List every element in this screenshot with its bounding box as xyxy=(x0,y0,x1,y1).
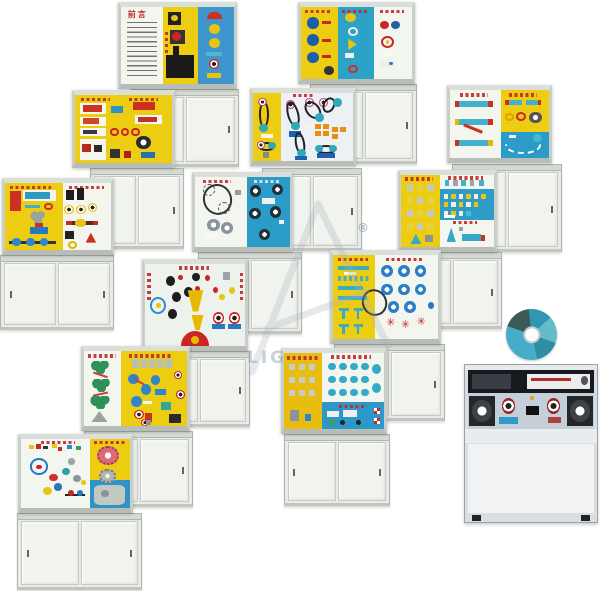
cabinet-door-right xyxy=(365,92,414,159)
cabinet-doors xyxy=(4,263,110,325)
display-item-rect xyxy=(169,414,180,423)
display-item-disc xyxy=(229,287,235,294)
display-item-wheel xyxy=(388,301,400,313)
display-item-rect xyxy=(417,184,424,191)
display-case-shafts-bearings-cabinet: ✳✳✳ xyxy=(330,250,441,344)
display-item-vtext xyxy=(240,271,244,301)
door-handle xyxy=(491,289,493,296)
display-item-disc xyxy=(156,303,161,308)
display-item-rect xyxy=(141,359,147,369)
display-panel: ✳✳✳ xyxy=(333,255,438,339)
display-item-title xyxy=(460,93,488,96)
cabinet-door-right xyxy=(81,521,139,585)
display-case-threaded-fasteners-cabinet xyxy=(398,170,497,252)
display-item-rect xyxy=(344,272,357,275)
door-handle xyxy=(182,467,184,474)
display-item-wheel xyxy=(136,136,151,150)
display-item-rect xyxy=(82,144,92,152)
display-item-ring xyxy=(516,112,526,121)
display-item-title xyxy=(509,93,537,96)
display-item-target xyxy=(134,410,143,419)
display-item-rect xyxy=(305,414,311,422)
display-item-rect xyxy=(332,127,338,132)
display-item-disc xyxy=(328,389,336,397)
display-item-disc xyxy=(73,475,81,482)
display-item-disc xyxy=(307,17,319,29)
display-item-text: 前言 xyxy=(128,9,157,19)
display-item-rect xyxy=(461,180,466,186)
display-item-disc xyxy=(339,363,347,371)
display-item-rect xyxy=(581,515,590,521)
display-item-rect xyxy=(505,100,508,105)
display-item-disc xyxy=(54,483,63,491)
display-item-rect xyxy=(444,202,449,207)
display-item-disc xyxy=(131,396,141,407)
display-item-rect xyxy=(459,227,464,231)
display-item-rect xyxy=(382,279,391,282)
display-item-checker xyxy=(374,418,380,424)
display-item-rect xyxy=(407,223,414,230)
display-item-disc xyxy=(530,396,534,400)
display-item-rect xyxy=(141,152,155,157)
display-item-disc xyxy=(307,34,319,46)
display-item-title xyxy=(331,355,371,359)
display-item-wheel xyxy=(249,208,260,219)
cabinet-door-right xyxy=(186,97,236,162)
display-item-rect xyxy=(317,153,335,158)
display-item-disc xyxy=(141,384,151,395)
display-item-rect xyxy=(468,444,595,513)
display-item-rect xyxy=(472,515,481,521)
display-item-rect xyxy=(212,324,225,329)
display-item-rect xyxy=(206,52,222,56)
display-panel xyxy=(195,177,290,247)
display-item-rect xyxy=(110,149,120,157)
door-handle xyxy=(239,387,241,394)
display-item-cluster xyxy=(91,379,112,392)
cabinet-door-right xyxy=(338,442,386,501)
display-item-title xyxy=(380,10,404,14)
display-item-disc xyxy=(166,276,175,286)
display-item-title xyxy=(129,98,158,101)
display-item-disc xyxy=(168,309,177,319)
display-item-rect xyxy=(132,359,138,369)
door-handle xyxy=(10,291,12,298)
display-item-rect xyxy=(58,447,62,451)
door-handle xyxy=(173,207,175,214)
display-item-disc xyxy=(361,389,369,397)
display-item-vtext xyxy=(165,30,168,53)
display-item-rect xyxy=(343,410,357,417)
display-item-title xyxy=(339,405,364,408)
cabinet-door-right xyxy=(313,176,358,246)
display-item-rect xyxy=(332,134,338,139)
display-case-chain-drive-cabinet xyxy=(192,172,293,252)
cd-hole xyxy=(523,326,540,343)
display-item-target xyxy=(76,205,86,214)
display-item-rect xyxy=(444,194,449,199)
display-item-rect xyxy=(228,324,241,329)
display-item-rect xyxy=(455,140,493,146)
display-item-target xyxy=(257,141,265,148)
display-item-title xyxy=(287,356,318,360)
display-item-rect xyxy=(407,197,414,204)
display-item-disc xyxy=(361,376,369,384)
display-item-rect xyxy=(451,202,456,207)
display-item-wheel xyxy=(570,400,590,422)
display-item-disc xyxy=(62,468,70,475)
display-item-blob xyxy=(94,485,125,504)
display-item-rect xyxy=(309,377,315,383)
display-item-rect xyxy=(453,180,458,186)
display-item-rect xyxy=(342,327,345,334)
display-item-rect xyxy=(479,180,484,186)
display-item-rect xyxy=(427,210,434,217)
display-item-rect xyxy=(289,364,295,370)
display-item-rect xyxy=(77,188,84,200)
display-item-rect xyxy=(399,279,408,282)
display-item-rect xyxy=(427,184,434,191)
cabinet-body xyxy=(17,513,142,590)
display-item-ring xyxy=(348,27,358,36)
display-item-rect xyxy=(299,364,305,370)
cabinet-door-right xyxy=(453,260,498,324)
display-item-wheel xyxy=(404,301,416,313)
display-item-rect xyxy=(235,190,241,196)
display-item-rect xyxy=(342,311,345,319)
display-item-rect xyxy=(548,417,561,423)
display-item-disc xyxy=(172,292,181,302)
display-item-disc xyxy=(350,376,358,384)
display-item-rect xyxy=(538,100,541,105)
cabinet-door-left xyxy=(4,263,56,325)
control-console xyxy=(464,364,598,523)
display-panel xyxy=(21,439,130,508)
display-item-title xyxy=(453,221,477,224)
display-item-rect xyxy=(207,73,221,78)
display-item-disc xyxy=(26,238,34,246)
display-item-rect xyxy=(531,378,571,381)
display-item-target xyxy=(547,398,560,414)
display-case-coupling-cabinet xyxy=(447,85,552,163)
display-item-rect xyxy=(444,215,455,219)
cabinet-door-right xyxy=(58,263,110,325)
display-item-rect xyxy=(76,446,81,450)
display-item-disc xyxy=(328,376,336,384)
display-item-rect xyxy=(488,101,492,107)
cabinet-door-right xyxy=(138,176,180,244)
display-item-rect xyxy=(425,235,432,242)
display-item-rect xyxy=(83,130,98,135)
display-item-rect xyxy=(481,235,485,240)
display-item-disc xyxy=(209,38,220,48)
display-item-rect xyxy=(481,194,486,199)
door-handle xyxy=(130,550,132,557)
display-item-lines xyxy=(127,22,158,76)
display-item-rect xyxy=(338,286,363,290)
display-item-rect xyxy=(10,191,21,211)
display-item-rect xyxy=(309,364,315,370)
display-item-target xyxy=(502,398,515,414)
display-panel: 前言 xyxy=(121,7,234,84)
display-panel xyxy=(450,90,549,158)
display-item-disc xyxy=(43,487,52,495)
display-item-wheel xyxy=(250,185,261,196)
display-item-rect xyxy=(299,390,305,396)
display-item-rect xyxy=(323,131,329,136)
display-item-rect xyxy=(205,234,218,239)
display-item-rect xyxy=(459,202,464,207)
display-item-rect xyxy=(124,151,132,158)
display-case-small-parts-cabinet xyxy=(281,348,387,434)
display-item-disc xyxy=(328,363,336,371)
display-item-rect xyxy=(417,197,424,204)
display-item-rect xyxy=(488,119,492,125)
display-item-rect xyxy=(427,223,434,230)
display-item-disc xyxy=(339,376,347,384)
display-item-disc xyxy=(350,389,358,397)
display-item-disc xyxy=(209,24,220,34)
display-item-rect xyxy=(25,205,40,208)
door-handle xyxy=(293,469,295,476)
display-item-rect xyxy=(29,445,34,449)
display-item-title xyxy=(88,354,116,358)
display-case-foreword-sewing-machine-cabinet: 前言 xyxy=(118,2,237,89)
display-item-rect xyxy=(279,220,285,224)
display-item-ring xyxy=(68,241,78,249)
display-case-gears-cabinet xyxy=(18,434,133,513)
display-item-rect xyxy=(36,444,40,449)
display-item-rect xyxy=(474,202,479,207)
display-item-rect xyxy=(445,180,450,186)
display-item-rect xyxy=(322,21,331,24)
display-item-rect xyxy=(35,223,43,228)
display-item-disc xyxy=(372,364,381,374)
display-item-disc xyxy=(192,273,200,281)
display-item-rect xyxy=(262,198,274,204)
door-handle xyxy=(379,469,381,476)
display-item-target xyxy=(174,371,182,379)
display-item-rect xyxy=(65,231,73,239)
door-handle xyxy=(351,208,353,215)
display-item-rect xyxy=(143,401,152,405)
display-item-disc xyxy=(350,363,358,371)
display-item-title xyxy=(69,186,104,189)
display-item-rect xyxy=(305,125,313,128)
display-item-disc xyxy=(151,375,160,385)
display-item-disc xyxy=(386,40,389,43)
display-item-rect xyxy=(173,46,179,57)
display-item-disc xyxy=(315,145,323,152)
display-item-disc xyxy=(36,465,41,470)
display-item-disc xyxy=(213,287,218,293)
display-item-wheel xyxy=(398,284,410,296)
scene: LIG ® 前言✳✳✳ xyxy=(0,0,600,591)
display-item-rect xyxy=(466,211,471,216)
display-item-rect xyxy=(526,406,539,415)
display-item-rect xyxy=(295,156,307,160)
cabinet-door-right xyxy=(391,352,442,416)
display-item-rect xyxy=(327,411,339,417)
display-item-rect xyxy=(466,194,471,199)
display-item-rect xyxy=(417,210,424,217)
display-panel xyxy=(5,183,111,250)
display-panel xyxy=(284,353,384,429)
display-item-rect xyxy=(417,223,424,230)
display-item-rect xyxy=(459,194,464,199)
display-item-rect xyxy=(462,234,481,241)
display-item-rect xyxy=(455,119,459,125)
display-item-target xyxy=(176,390,185,399)
display-item-rect xyxy=(146,420,151,425)
display-item-rect xyxy=(52,444,57,448)
display-item-rect xyxy=(309,390,315,396)
display-item-title xyxy=(10,186,50,189)
display-item-star: ✳ xyxy=(386,317,397,328)
display-item-disc xyxy=(219,294,225,301)
display-item-rect xyxy=(25,192,49,199)
display-item-title xyxy=(338,258,367,262)
display-item-semidisc xyxy=(207,12,222,20)
display-case-tools-mechanisms-cabinet xyxy=(2,178,114,255)
display-item-target xyxy=(229,312,240,324)
display-item-target xyxy=(213,312,224,324)
display-case-gear-trains-cabinet xyxy=(81,346,190,431)
display-item-dashring xyxy=(203,184,215,196)
display-item-title xyxy=(338,276,368,281)
display-item-rect xyxy=(263,152,269,157)
display-item-rect xyxy=(67,445,72,449)
display-item-rect xyxy=(340,127,346,132)
display-item-disc xyxy=(329,145,337,152)
display-case-mechanisms-cabinet xyxy=(298,2,415,84)
display-item-rect xyxy=(322,39,331,42)
display-panel xyxy=(145,264,245,346)
display-item-rect xyxy=(455,140,459,146)
display-item-disc xyxy=(339,389,347,397)
display-panel xyxy=(84,351,187,426)
display-item-rect xyxy=(455,119,493,125)
display-item-rect xyxy=(323,124,329,129)
display-item-rect xyxy=(499,417,517,424)
display-item-ring xyxy=(110,128,119,137)
display-item-rect xyxy=(66,190,73,201)
display-item-disc xyxy=(75,219,86,228)
display-item-rect xyxy=(66,221,71,226)
display-item-title xyxy=(81,98,110,101)
display-item-wheel xyxy=(270,206,281,217)
display-item-title xyxy=(293,94,313,97)
display-item-title xyxy=(305,10,329,14)
cabinet-door-left xyxy=(21,521,79,585)
display-item-rect xyxy=(161,402,170,410)
display-item-rect xyxy=(455,101,459,107)
display-item-rect xyxy=(338,266,368,270)
display-item-vtext xyxy=(147,271,151,301)
display-item-ring xyxy=(348,65,358,74)
display-item-rect xyxy=(382,52,393,56)
display-item-target xyxy=(258,98,267,106)
display-item-target xyxy=(209,59,219,68)
display-item-rect xyxy=(455,101,493,107)
display-item-star: ✳ xyxy=(400,319,411,330)
display-item-title xyxy=(405,177,433,181)
display-item-rect xyxy=(459,211,464,216)
display-item-wheel xyxy=(398,265,410,277)
display-item-rect xyxy=(488,140,492,146)
cabinet-doors xyxy=(21,521,138,585)
display-item-wheel xyxy=(207,219,219,231)
display-item-disc xyxy=(428,302,434,309)
display-item-rect xyxy=(329,420,335,425)
display-item-rect xyxy=(315,131,321,136)
display-item-title xyxy=(41,441,76,444)
display-item-disc xyxy=(581,376,588,385)
display-case-cam-mechanisms-cabinet xyxy=(142,259,248,351)
display-item-disc xyxy=(324,66,334,75)
display-item-wheel xyxy=(381,284,393,296)
display-item-target xyxy=(64,205,74,214)
display-item-rect xyxy=(149,359,155,369)
door-handle xyxy=(291,291,293,298)
display-panel xyxy=(401,175,494,247)
display-item-rect xyxy=(43,446,48,449)
display-item-title xyxy=(129,354,172,358)
door-handle xyxy=(434,381,436,388)
cabinet-door-right xyxy=(200,359,246,422)
display-item-disc xyxy=(361,363,369,371)
display-item-wheel xyxy=(381,265,393,277)
cabinet-door-right xyxy=(251,260,298,329)
display-item-rect xyxy=(466,202,471,207)
display-item-disc xyxy=(101,490,110,497)
display-item-rect xyxy=(299,377,305,383)
display-item-rect xyxy=(261,134,273,138)
cabinet-body xyxy=(284,434,390,506)
display-item-rect xyxy=(465,429,597,444)
door-handle xyxy=(551,206,553,213)
display-item-title xyxy=(179,266,209,270)
display-item-rect xyxy=(509,135,516,138)
display-item-rect xyxy=(322,55,331,58)
display-item-rect xyxy=(83,118,99,123)
display-item-rect xyxy=(289,377,295,383)
display-item-rect xyxy=(155,389,166,396)
door-handle xyxy=(406,122,408,129)
display-item-rect xyxy=(223,272,230,280)
display-item-cluster xyxy=(89,396,112,409)
display-item-rect xyxy=(474,194,479,199)
display-item-rect xyxy=(451,194,456,199)
display-item-rect xyxy=(111,106,124,113)
cabinet-door-right xyxy=(508,172,558,247)
display-item-rect xyxy=(470,180,475,186)
display-item-rect xyxy=(472,374,512,388)
display-item-target xyxy=(88,203,98,212)
display-panel xyxy=(253,93,353,161)
display-item-rect xyxy=(166,55,194,78)
display-item-rect xyxy=(427,197,434,204)
display-item-disc xyxy=(307,52,319,64)
cabinet-body xyxy=(0,255,114,330)
display-item-rect xyxy=(94,145,102,152)
display-item-title xyxy=(254,180,280,184)
display-item-rect xyxy=(290,410,299,421)
display-item-disc xyxy=(171,15,178,21)
display-panel xyxy=(301,7,412,79)
display-item-disc xyxy=(380,21,389,29)
display-item-title xyxy=(386,258,424,262)
